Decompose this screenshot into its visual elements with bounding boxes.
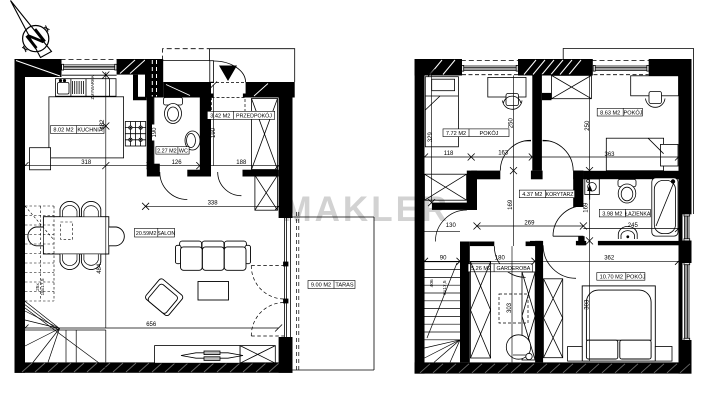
svg-text:TARAS: TARAS (335, 283, 354, 289)
svg-text:130: 130 (446, 223, 457, 229)
svg-text:7.72 M2: 7.72 M2 (446, 131, 466, 137)
svg-text:KUCHNIA: KUCHNIA (77, 128, 102, 134)
svg-text:KORYTARZ: KORYTARZ (546, 192, 574, 198)
svg-text:20.59M2: 20.59M2 (136, 231, 157, 237)
svg-text:329: 329 (428, 132, 434, 143)
svg-text:338: 338 (208, 201, 219, 207)
svg-text:482: 482 (100, 119, 106, 130)
svg-text:318: 318 (81, 160, 92, 166)
svg-text:250: 250 (585, 120, 591, 131)
svg-text:269: 269 (524, 220, 535, 226)
svg-text:POKÓJ: POKÓJ (626, 274, 645, 281)
svg-text:190: 190 (152, 127, 158, 138)
svg-text:25x: 25x (35, 283, 41, 291)
svg-text:303: 303 (585, 299, 591, 310)
svg-text:ZMYWARKA: ZMYWARKA (90, 75, 95, 99)
svg-text:2.27 M2: 2.27 M2 (157, 148, 176, 154)
svg-text:MAKLER: MAKLER (283, 190, 451, 229)
svg-text:484: 484 (97, 263, 103, 274)
svg-text:188: 188 (236, 160, 247, 166)
svg-text:SALON: SALON (157, 231, 175, 237)
svg-text:303: 303 (507, 302, 513, 313)
svg-text:POKÓJ: POKÓJ (624, 109, 643, 116)
svg-text:126: 126 (172, 160, 183, 166)
svg-text:9.00 M2: 9.00 M2 (311, 283, 331, 289)
svg-text:362: 362 (604, 255, 615, 261)
svg-text:WC: WC (179, 148, 188, 154)
svg-text:POKÓJ: POKÓJ (480, 130, 499, 137)
svg-text:118: 118 (444, 151, 454, 157)
svg-text:250: 250 (509, 118, 515, 129)
svg-text:GARDEROBA: GARDEROBA (496, 266, 530, 272)
svg-text:8x17,5: 8x17,5 (442, 280, 448, 295)
svg-text:90: 90 (440, 256, 447, 262)
svg-text:163: 163 (498, 150, 509, 156)
svg-text:363: 363 (604, 152, 615, 158)
svg-text:169: 169 (508, 199, 514, 210)
svg-text:406: 406 (429, 279, 435, 287)
svg-text:3.98 M2: 3.98 M2 (602, 211, 622, 217)
svg-text:8.63 M2: 8.63 M2 (600, 110, 620, 116)
svg-text:10.70 M2: 10.70 M2 (600, 275, 623, 281)
svg-text:169: 169 (583, 202, 589, 213)
svg-text:245: 245 (628, 223, 639, 229)
svg-text:ŁAZIENKA: ŁAZIENKA (625, 211, 651, 217)
svg-text:180: 180 (495, 256, 506, 262)
svg-text:8.02 M2: 8.02 M2 (53, 128, 73, 134)
svg-text:PRZEDPOKÓJ: PRZEDPOKÓJ (236, 112, 272, 119)
svg-text:4.37 M2: 4.37 M2 (522, 192, 542, 198)
svg-text:190: 190 (211, 127, 217, 138)
svg-text:656: 656 (146, 322, 157, 328)
